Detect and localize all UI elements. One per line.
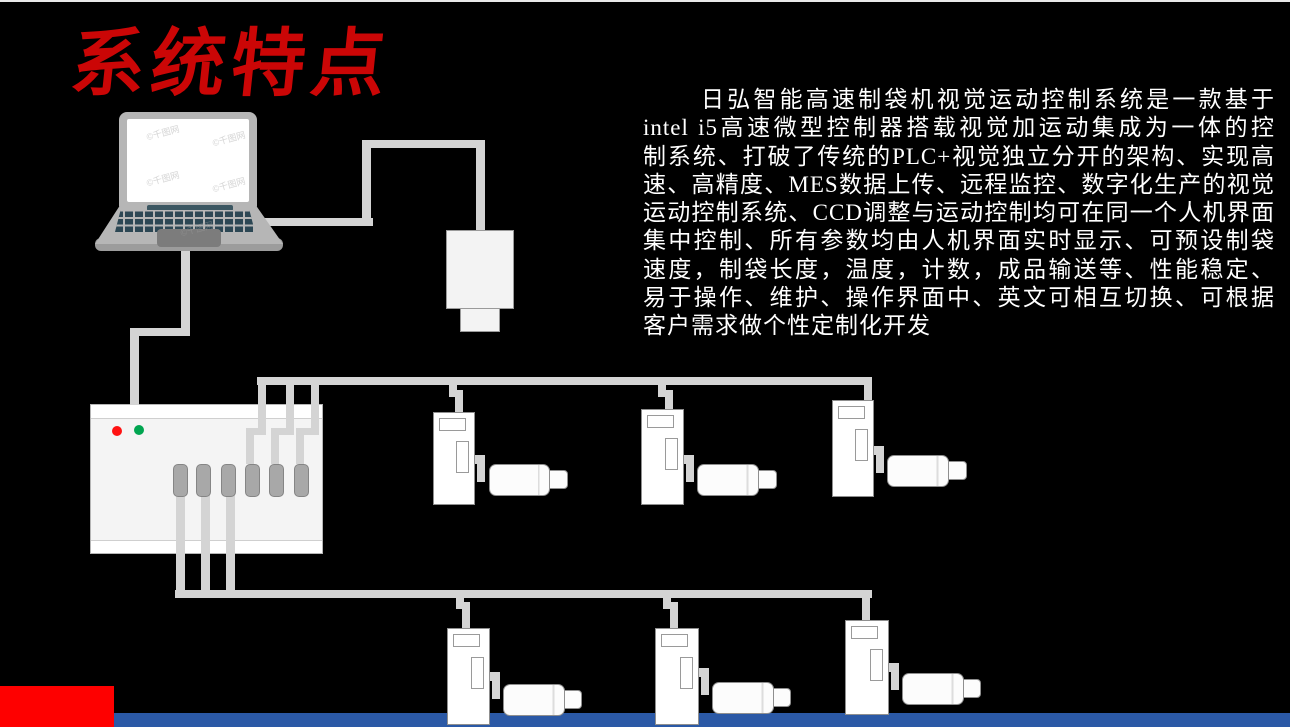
- servo-motor: [902, 673, 964, 705]
- cable-laptop-controller: [181, 249, 190, 336]
- controller-port: [294, 464, 309, 497]
- cable-drive-motor: [492, 672, 500, 699]
- description-line: 速、高精度、MES数据上传、远程监控、数字化生产的视觉: [643, 171, 1275, 199]
- controller-port: [173, 464, 188, 497]
- cable-port-down: [176, 492, 185, 592]
- cable-drop: [670, 604, 678, 629]
- cable-upper-bus: [257, 377, 872, 385]
- servo-motor: [489, 464, 550, 496]
- cable-drop: [864, 384, 872, 401]
- cable-laptop-controller: [130, 328, 139, 405]
- cable-laptop-controller: [130, 328, 190, 336]
- controller-port: [196, 464, 211, 497]
- cable-bus-riser: [258, 384, 266, 405]
- led-red: [112, 426, 122, 436]
- cable-port-down: [201, 492, 210, 592]
- drive-connector-slot: [665, 438, 678, 470]
- cable-bus-riser: [311, 384, 319, 405]
- cable-laptop-camera: [362, 140, 484, 148]
- cable-internal: [271, 430, 279, 464]
- drive-connector-slot: [870, 649, 883, 681]
- servo-motor: [887, 455, 949, 487]
- cable-drop: [455, 392, 463, 412]
- camera-image: [446, 230, 514, 309]
- servo-drive: [641, 409, 684, 505]
- drive-display-window: [439, 418, 466, 431]
- cable-laptop-camera: [362, 140, 371, 226]
- servo-drive: [447, 628, 490, 725]
- cable-drop: [862, 597, 870, 621]
- camera-lens: [460, 306, 500, 332]
- footer-red-block: [0, 686, 114, 727]
- servo-drive: [845, 620, 889, 715]
- cable-laptop-camera: [476, 140, 485, 232]
- servo-drive: [433, 412, 475, 505]
- servo-motor: [712, 682, 774, 714]
- description-line: 客户需求做个性定制化开发: [643, 312, 1275, 340]
- page-title: 系统特点: [66, 4, 397, 111]
- cable-drop: [462, 604, 470, 629]
- drive-display-window: [838, 406, 865, 419]
- cable-bus-riser: [286, 384, 294, 405]
- drive-display-window: [647, 415, 674, 428]
- cable-lower-bus: [175, 590, 872, 598]
- cable-drop: [665, 392, 673, 410]
- servo-drive: [655, 628, 699, 725]
- description-line: 集中控制、所有参数均由人机界面实时显示、可预设制袋: [643, 227, 1275, 255]
- drive-connector-slot: [855, 429, 868, 461]
- cable-internal: [296, 430, 304, 464]
- description-line: 易于操作、维护、操作界面中、英文可相互切换、可根据: [643, 284, 1275, 312]
- description-line: 日弘智能高速制袋机视觉运动控制系统是一款基于: [643, 86, 1275, 114]
- drive-display-window: [851, 626, 878, 639]
- laptop-image: [119, 112, 257, 208]
- servo-drive: [832, 400, 874, 497]
- top-border-line: [0, 0, 1290, 2]
- drive-connector-slot: [456, 441, 469, 473]
- drive-connector-slot: [680, 657, 693, 689]
- servo-motor: [697, 464, 759, 496]
- description-paragraph: 日弘智能高速制袋机视觉运动控制系统是一款基于 intel i5高速微型控制器搭载…: [643, 86, 1275, 341]
- cable-drive-motor: [686, 455, 694, 482]
- cable-drive-motor: [477, 455, 485, 482]
- controller-port: [221, 464, 236, 497]
- controller-port: [269, 464, 284, 497]
- description-line: 速度，制袋长度，温度，计数，成品输送等、性能稳定、: [643, 256, 1275, 284]
- servo-motor: [503, 684, 565, 716]
- footer-blue-bar: [114, 713, 1290, 727]
- drive-connector-slot: [471, 657, 484, 689]
- slide: 系统特点 日弘智能高速制袋机视觉运动控制系统是一款基于 intel i5高速微型…: [0, 0, 1290, 727]
- cable-port-down: [226, 492, 235, 592]
- cable-drive-motor: [876, 446, 884, 473]
- drive-display-window: [661, 634, 688, 647]
- description-line: 制系统、打破了传统的PLC+视觉独立分开的架构、实现高: [643, 143, 1275, 171]
- description-line: 运动控制系统、CCD调整与运动控制均可在同一个人机界面: [643, 199, 1275, 227]
- cable-drive-motor: [891, 663, 899, 690]
- drive-display-window: [453, 634, 480, 647]
- cable-internal: [246, 430, 254, 464]
- cable-drive-motor: [701, 668, 709, 695]
- led-green: [134, 425, 144, 435]
- description-line: intel i5高速微型控制器搭载视觉加运动集成为一体的控: [643, 114, 1275, 142]
- controller-port: [245, 464, 260, 497]
